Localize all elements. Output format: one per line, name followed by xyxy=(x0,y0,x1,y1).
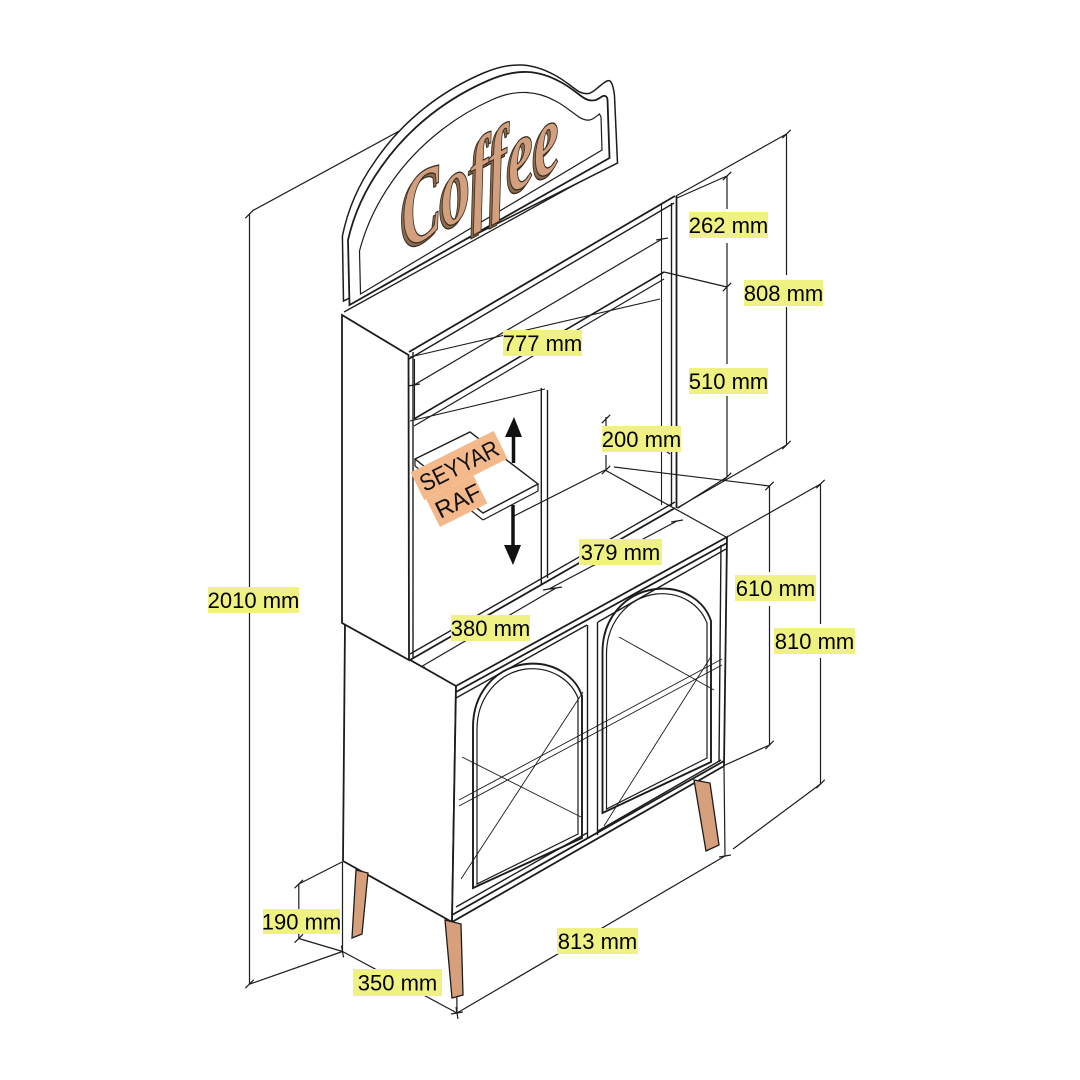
svg-text:262 mm: 262 mm xyxy=(689,213,768,238)
svg-text:350 mm: 350 mm xyxy=(358,970,437,995)
svg-text:200 mm: 200 mm xyxy=(602,427,681,452)
svg-text:808 mm: 808 mm xyxy=(744,281,823,306)
svg-text:510 mm: 510 mm xyxy=(689,369,768,394)
svg-text:380 mm: 380 mm xyxy=(451,616,530,641)
svg-text:379 mm: 379 mm xyxy=(581,540,660,565)
svg-text:190 mm: 190 mm xyxy=(262,909,341,934)
svg-text:810 mm: 810 mm xyxy=(775,629,854,654)
svg-text:610 mm: 610 mm xyxy=(736,576,815,601)
svg-text:813 mm: 813 mm xyxy=(558,929,637,954)
svg-text:777 mm: 777 mm xyxy=(503,331,582,356)
svg-text:2010 mm: 2010 mm xyxy=(208,588,300,613)
